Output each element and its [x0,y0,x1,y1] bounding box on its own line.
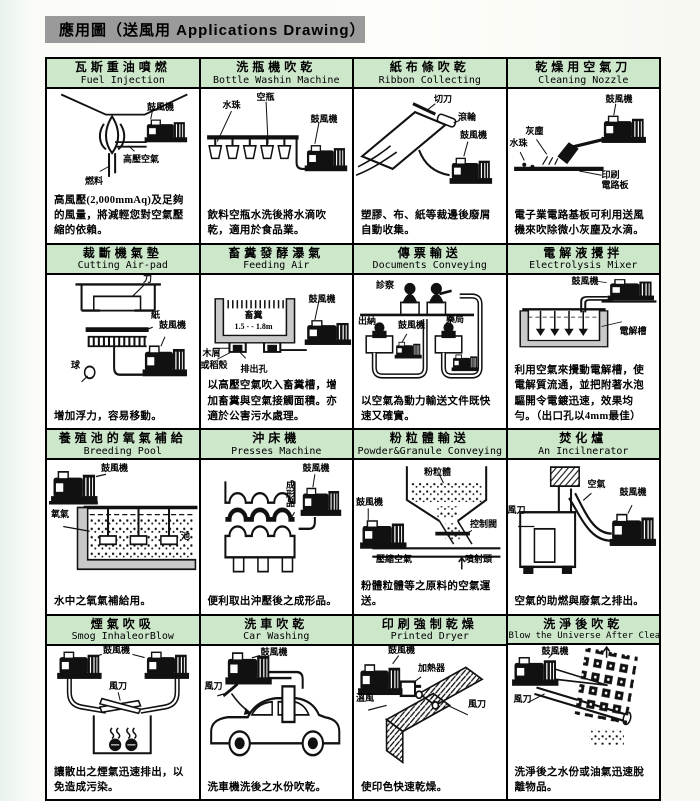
diagram-label: 滾輪 [458,113,476,122]
cell-title-en: Ribbon Collecting [355,75,505,87]
cell-title: 裁斷機氣墊 Cutting Air-pad [47,245,199,275]
cell-title: 沖床機 Presses Machine [201,430,353,460]
cell-presses-machine: 沖床機 Presses Machine 鼓風機 成形品 便利取出沖壓後之成形品。 [201,430,353,614]
blower-icon [395,342,422,358]
cell-title-en: Car Washing [202,631,352,643]
diagram-label: 鼓風機 [460,131,487,140]
diagram-label: 鼓風機 [261,648,288,657]
diagram-label: 1.5 - - 1.8m [235,323,273,331]
cell-title-en: Breeding Pool [48,446,198,458]
diagram-label: 成形品 [285,480,294,507]
cell-title: 乾燥用空氣刀 Cleaning Nozzle [508,59,660,89]
cell-title: 煙氣吹吸 Smog InhaleorBlow [47,616,199,646]
diagram-label: 鼓風機 [606,95,633,104]
diagram-documents-conveying: 診察 出納 鼓風機 藥局 [354,275,506,393]
diagram-label: 高壓空氣 [123,155,159,164]
diagram-label: 粉粒體 [424,468,451,477]
cell-title-zh: 裁斷機氣墊 [48,247,198,261]
diagram-cleaning-nozzle: 鼓風機 灰塵 水珠 印刷 電路板 [508,89,660,207]
cell-description: 洗淨後之水份或油氣迅速脫離物品。 [508,764,660,799]
diagram-label: 鼓風機 [572,277,599,286]
blower-icon [145,120,188,142]
diagram-label: 溫風 [356,694,374,703]
cell-title: 電解液攪拌 Electrolysis Mixer [508,245,660,275]
cell-description: 讓散出之煙氣迅速排出，以免造成污染。 [47,764,199,799]
diagram-label: 噴射頭 [465,555,492,564]
cell-title-en: Cleaning Nozzle [509,75,659,87]
diagram-label: 切刀 [434,95,452,104]
diagram-label: 刀 [143,275,152,284]
blower-icon [300,489,341,516]
cell-title-zh: 煙氣吹吸 [48,618,198,632]
diagram-fuel-injection: 鼓風機 高壓空氣 燃料 [47,89,199,192]
cell-title-en: Printed Dryer [355,631,505,643]
diagram-label: 畜糞 [245,311,263,320]
cell-title-en: Powder&Granule Conveying [355,446,505,458]
cell-documents-conveying: 傳票輸送 Documents Conveying [354,245,506,429]
cell-title-zh: 養殖池的氧氣補給 [48,432,198,446]
cell-description: 便利取出沖壓後之成形品。 [201,593,353,613]
blower-icon [358,665,402,695]
cell-title-zh: 瓦斯重油噴燃 [48,61,198,75]
diagram-label: 鼓風機 [101,464,128,473]
diagram-sketch [508,275,660,362]
cell-title-zh: 洗瓶機吹乾 [202,61,352,75]
diagram-sketch [47,275,199,408]
blower-icon [57,652,101,679]
cell-description: 使印色快速乾燥。 [354,779,506,799]
blower-icon [51,472,97,503]
diagram-label: 風刀 [205,682,223,691]
diagram-label: 鼓風機 [147,103,174,112]
cell-title-en: Electrolysis Mixer [509,260,659,272]
diagram-label: 藥局 [446,315,464,324]
page-title: 應用圖（送風用 Applications Drawing） [45,16,365,43]
cell-fuel-injection: 瓦斯重油噴燃 Fuel Injection 鼓風機 高壓空氣 燃料 高風壓(2,… [47,59,199,243]
diagram-label: 鼓風機 [311,115,338,124]
cell-title-en: Blow the Universe After Clean [509,631,659,641]
cell-title: 畜糞發酵瀑氣 Feeding Air [201,245,353,275]
cell-title: 洗淨後吹乾 Blow the Universe After Clean [508,616,660,645]
diagram-label: 風刀 [468,700,486,709]
diagram-sketch [354,275,506,393]
cell-description: 空氣的助燃與廢氣之排出。 [508,593,660,613]
cell-description: 塑膠、布、紙等裁邊後廢屑自動收集。 [354,207,506,242]
diagram-label: 風刀 [514,695,532,704]
cell-title-zh: 乾燥用空氣刀 [509,61,659,75]
cell-smog-inhale-blow: 煙氣吹吸 Smog InhaleorBlow [47,616,199,800]
blower-icon [512,657,558,685]
diagram-label: 鼓風機 [309,295,336,304]
cell-title-zh: 沖床機 [202,432,352,446]
cell-description: 以高壓空氣吹入畜糞槽，增加畜糞與空氣接觸面積。亦適於公害污水處理。 [201,377,353,428]
diagram-label: 空氣 [588,480,606,489]
diagram-ribbon-collecting: 切刀 滾輪 鼓風機 [354,89,506,207]
cell-description: 利用空氣來攪動電解槽，使電解質流通，並把附著水泡驅開令電鍍迅速，效果均勻。（出口… [508,362,660,428]
cell-title-en: Presses Machine [202,446,352,458]
diagram-label: 鼓風機 [356,498,383,507]
diagram-label: 空瓶 [257,93,275,102]
cell-title: 洗瓶機吹乾 Bottle Washin Machine [201,59,353,89]
cell-title-en: Documents Conveying [355,260,505,272]
diagram-label: 控制閥 [470,520,497,529]
diagram-car-washing: 鼓風機 風刀 [201,646,353,779]
cell-title: 紙布條吹乾 Ribbon Collecting [354,59,506,89]
cell-title: 洗車吹乾 Car Washing [201,616,353,646]
cell-cutting-air-pad: 裁斷機氣墊 Cutting Air-pad 刀 紙 [47,245,199,429]
cell-description: 粉體粒體等之原料的空氣運送。 [354,578,506,613]
cell-description: 高風壓(2,000mmAq)及足夠的風量，將減輕您對空氣壓縮的依賴。 [47,192,199,243]
cell-title-en: Cutting Air-pad [48,260,198,272]
diagram-label: 排出孔 [241,365,268,374]
diagram-breeding-pool: 鼓風機 氧氣 池 [47,460,199,593]
cell-title: 養殖池的氧氣補給 Breeding Pool [47,430,199,460]
diagram-powder-granule: 粉粒體 鼓風機 控制閥 壓縮空氣 噴射頭 [354,460,506,578]
cell-title-en: Feeding Air [202,260,352,272]
diagram-label: 球 [71,361,80,370]
diagram-label: 鼓風機 [398,321,425,330]
blower-icon [304,321,350,345]
diagram-label: 或稻殼 [201,361,228,370]
cell-electrolysis-mixer: 電解液攪拌 Electrolysis Mixer 鼓風機 電解槽 利 [508,245,660,429]
diagram-label: 出納 [358,317,376,326]
diagram-label: 氧氣 [51,510,69,519]
diagram-label: 壓縮空氣 [376,555,412,564]
diagram-smog: 鼓風機 風刀 [47,646,199,764]
blower-icon [601,117,645,144]
blower-icon [609,515,655,546]
blower-icon [225,653,271,684]
cell-title: 印刷強制乾燥 Printed Dryer [354,616,506,646]
cell-title-zh: 粉粒體輸送 [355,432,505,446]
cell-description: 洗車機洗後之水份吹乾。 [201,779,353,799]
diagram-label: 池 [181,532,190,541]
cell-title: 瓦斯重油噴燃 Fuel Injection [47,59,199,89]
blower-icon [304,146,347,171]
diagram-label: 紙 [151,311,160,320]
cell-blow-after-clean: 洗淨後吹乾 Blow the Universe After Clean 鼓風機 … [508,616,660,800]
cell-feeding-air: 畜糞發酵瀑氣 Feeding Air 畜糞 1.5 - - 1.8m 鼓風機 木… [201,245,353,429]
cell-description: 飲料空瓶水洗後將水滴吹乾，適用於食品業。 [201,207,353,242]
cell-incinerator: 焚化爐 An Incilnerator 空氣 鼓風機 風刀 [508,430,660,614]
cell-title-zh: 印刷強制乾燥 [355,618,505,632]
diagram-label: 鼓風機 [159,321,186,330]
cell-ribbon-collecting: 紙布條吹乾 Ribbon Collecting 切刀 滾輪 鼓風機 塑膠、布、紙… [354,59,506,243]
diagram-label: 風刀 [109,682,127,691]
cell-title-zh: 電解液攪拌 [509,247,659,261]
cell-title: 焚化爐 An Incilnerator [508,430,660,460]
diagram-label: 水珠 [223,101,241,110]
diagram-electrolysis-mixer: 鼓風機 電解槽 [508,275,660,362]
diagram-cutting-air-pad: 刀 紙 鼓風機 球 [47,275,199,408]
cell-title-zh: 洗車吹乾 [202,618,352,632]
diagram-feeding-air: 畜糞 1.5 - - 1.8m 鼓風機 木屑 或稻殼 排出孔 [201,275,353,378]
diagram-label: 印刷 電路板 [602,171,629,190]
diagram-label: 灰塵 [526,127,544,136]
diagram-label: 燃料 [85,177,103,186]
diagram-label: 鼓風機 [303,464,330,473]
diagram-bottle-washing: 水珠 空瓶 鼓風機 [201,89,353,207]
cell-title-en: Bottle Washin Machine [202,75,352,87]
diagram-label: 木屑 [203,349,221,358]
cell-bottle-washing: 洗瓶機吹乾 Bottle Washin Machine 水珠 空瓶 鼓風機 飲料… [201,59,353,243]
diagram-label: 鼓風機 [542,647,569,656]
cell-cleaning-nozzle: 乾燥用空氣刀 Cleaning Nozzle 鼓風機 灰塵 水珠 印刷 電路板 … [508,59,660,243]
blower-icon [450,159,493,184]
diagram-label: 水珠 [510,139,528,148]
cell-description: 水中之氧氣補給用。 [47,593,199,613]
diagram-sketch [508,645,660,764]
cell-title-zh: 焚化爐 [509,432,659,446]
cell-powder-granule-conveying: 粉粒體輸送 Powder&Granule Conveying 粉粒體 [354,430,506,614]
diagram-label: 加熱器 [418,664,445,673]
diagram-label: 診察 [376,281,394,290]
diagram-sketch [201,460,353,593]
cell-title-en: Smog InhaleorBlow [48,631,198,643]
diagram-sketch [201,646,353,779]
cell-description: 增加浮力，容易移動。 [47,408,199,428]
cell-title-zh: 畜糞發酵瀑氣 [202,247,352,261]
cell-printed-dryer: 印刷強制乾燥 Printed Dryer 鼓風機 加熱器 溫風 [354,616,506,800]
diagram-label: 鼓風機 [388,646,415,655]
blower-icon [452,355,479,371]
cell-title-zh: 紙布條吹乾 [355,61,505,75]
cell-title: 粉粒體輸送 Powder&Granule Conveying [354,430,506,460]
diagram-sketch [508,460,660,593]
cell-description: 以空氣為動力輸送文件既快速又確實。 [354,393,506,428]
blower-icon [607,279,653,300]
diagram-label: 鼓風機 [103,646,130,655]
cell-title-en: Fuel Injection [48,75,198,87]
cell-title-en: An Incilnerator [509,446,659,458]
cell-car-washing: 洗車吹乾 Car Washing 鼓風機 [201,616,353,800]
blower-icon [145,652,189,679]
diagram-sketch [47,460,199,593]
diagram-label: 鼓風機 [620,488,647,497]
blower-icon [360,521,406,549]
blower-icon [143,346,187,376]
diagram-blow-after-clean: 鼓風機 風刀 [508,645,660,764]
diagram-sketch [47,646,199,764]
diagram-label: 電解槽 [620,327,647,336]
diagram-sketch [47,89,199,192]
cell-title-zh: 洗淨後吹乾 [509,618,659,632]
cell-title-zh: 傳票輸送 [355,247,505,261]
diagram-printed-dryer: 鼓風機 加熱器 溫風 風刀 [354,646,506,779]
diagram-sketch [354,89,506,207]
diagram-sketch [508,89,660,207]
cell-description: 電子業電路基板可利用送風機來吹除微小灰塵及水滴。 [508,207,660,242]
diagram-presses-machine: 鼓風機 成形品 [201,460,353,593]
applications-grid: 瓦斯重油噴燃 Fuel Injection 鼓風機 高壓空氣 燃料 高風壓(2,… [45,57,661,801]
diagram-incinerator: 空氣 鼓風機 風刀 [508,460,660,593]
cell-breeding-pool: 養殖池的氧氣補給 Breeding Pool 鼓風機 [47,430,199,614]
cell-title: 傳票輸送 Documents Conveying [354,245,506,275]
diagram-label: 風刀 [508,506,526,515]
